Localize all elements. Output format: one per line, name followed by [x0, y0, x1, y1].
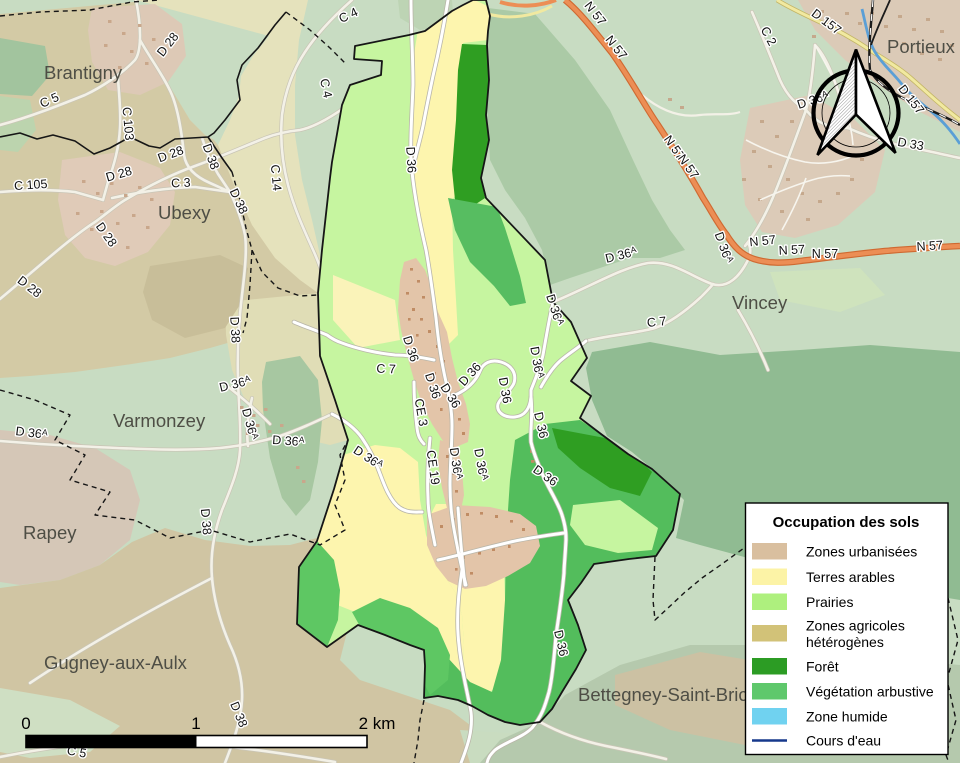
svg-text:Zones urbanisées: Zones urbanisées: [806, 544, 917, 560]
svg-text:N 57: N 57: [749, 233, 777, 250]
svg-text:hétérogènes: hétérogènes: [806, 634, 884, 650]
svg-text:Rapey: Rapey: [23, 522, 77, 543]
svg-text:Zones agricoles: Zones agricoles: [806, 618, 905, 634]
svg-text:C 105: C 105: [14, 177, 48, 193]
svg-text:C 7: C 7: [646, 314, 667, 330]
svg-text:Brantigny: Brantigny: [44, 62, 123, 83]
svg-text:Ubexy: Ubexy: [158, 202, 211, 223]
svg-text:D 38: D 38: [198, 508, 214, 536]
svg-text:Occupation des sols: Occupation des sols: [773, 514, 920, 531]
svg-text:Végétation arbustive: Végétation arbustive: [806, 684, 934, 700]
svg-text:N 57: N 57: [916, 238, 943, 254]
svg-text:Vincey: Vincey: [732, 292, 788, 313]
svg-text:D 38: D 38: [227, 316, 242, 343]
svg-text:Prairies: Prairies: [806, 594, 853, 610]
svg-text:C 103: C 103: [120, 106, 137, 140]
svg-text:Forêt: Forêt: [806, 659, 839, 675]
svg-text:1: 1: [191, 714, 200, 733]
svg-text:Cours d'eau: Cours d'eau: [806, 733, 881, 749]
svg-text:N 57: N 57: [812, 247, 838, 261]
svg-text:Zone humide: Zone humide: [806, 709, 888, 725]
svg-text:2 km: 2 km: [359, 714, 396, 733]
svg-text:C 7: C 7: [376, 362, 396, 377]
svg-text:N 57: N 57: [778, 242, 805, 257]
svg-text:C 3: C 3: [171, 176, 191, 191]
svg-text:Varmonzey: Varmonzey: [113, 410, 206, 431]
svg-text:Gugney-aux-Aulx: Gugney-aux-Aulx: [44, 652, 188, 673]
svg-text:0: 0: [21, 714, 30, 733]
svg-text:D 36: D 36: [403, 146, 418, 173]
svg-text:Terres arables: Terres arables: [806, 569, 895, 585]
svg-text:Bettegney-Saint-Brice: Bettegney-Saint-Brice: [578, 684, 758, 705]
svg-text:Portieux: Portieux: [887, 36, 956, 57]
svg-text:C 14: C 14: [268, 164, 284, 192]
